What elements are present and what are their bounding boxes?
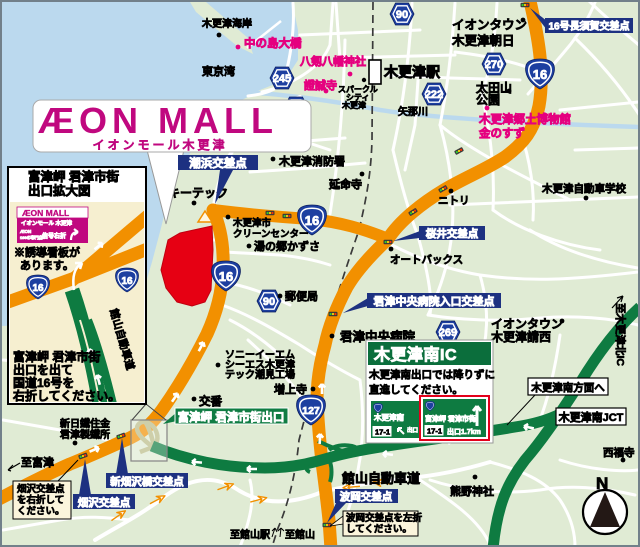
svg-text:増上寺: 増上寺 bbox=[274, 382, 307, 396]
svg-text:269: 269 bbox=[439, 327, 457, 339]
svg-text:クリーンセンター: クリーンセンター bbox=[233, 228, 309, 240]
svg-text:熊野神社: 熊野神社 bbox=[450, 484, 494, 498]
svg-text:テック潮見工場: テック潮見工場 bbox=[225, 368, 295, 381]
svg-text:国道16号を: 国道16号を bbox=[13, 375, 74, 390]
svg-text:富津岬 君津市街: 富津岬 君津市街 bbox=[13, 349, 100, 364]
svg-text:西福寺: 西福寺 bbox=[603, 446, 635, 459]
svg-text:波岡交差点: 波岡交差点 bbox=[340, 490, 393, 503]
svg-text:オートバックス: オートバックス bbox=[390, 254, 463, 266]
svg-text:90: 90 bbox=[263, 296, 275, 308]
svg-text:90: 90 bbox=[396, 9, 408, 21]
svg-text:君津中央病院入口交差点: 君津中央病院入口交差点 bbox=[374, 294, 495, 308]
svg-text:公園: 公園 bbox=[476, 93, 500, 107]
svg-text:湯の郷かずさ: 湯の郷かずさ bbox=[254, 239, 320, 253]
svg-text:16: 16 bbox=[121, 276, 133, 287]
svg-text:木更津南: 木更津南 bbox=[373, 412, 404, 422]
svg-text:矢那川: 矢那川 bbox=[398, 105, 428, 118]
svg-text:至木更津北IC: 至木更津北IC bbox=[614, 303, 627, 366]
svg-text:木更津南出口では降りずに: 木更津南出口では降りずに bbox=[368, 368, 495, 381]
svg-text:100の専門店: 100の専門店 bbox=[20, 234, 43, 240]
svg-text:木更津海岸: 木更津海岸 bbox=[201, 17, 252, 30]
svg-text:富津岬 君津市街出口: 富津岬 君津市街出口 bbox=[178, 410, 285, 424]
svg-text:222: 222 bbox=[425, 89, 443, 101]
svg-text:ÆON MALL: ÆON MALL bbox=[22, 208, 69, 218]
svg-text:木更津南IC: 木更津南IC bbox=[373, 345, 457, 364]
svg-text:イオンタウン: イオンタウン bbox=[491, 317, 563, 331]
svg-text:君津製鐵所: 君津製鐵所 bbox=[60, 428, 110, 441]
svg-text:※誘導看板が: ※誘導看板が bbox=[14, 245, 80, 259]
svg-text:ÆON MALL: ÆON MALL bbox=[38, 100, 278, 141]
svg-text:木更津南JCT: 木更津南JCT bbox=[558, 410, 624, 424]
svg-text:17-1: 17-1 bbox=[427, 427, 442, 436]
svg-text:出口を出て: 出口を出て bbox=[13, 362, 73, 377]
svg-text:ニトリ: ニトリ bbox=[438, 195, 470, 207]
svg-text:127: 127 bbox=[302, 405, 320, 417]
svg-text:富津岬 君津市街: 富津岬 君津市街 bbox=[28, 169, 119, 184]
svg-text:16号長須賀交差点: 16号長須賀交差点 bbox=[548, 20, 629, 33]
svg-text:至館山: 至館山 bbox=[285, 528, 315, 541]
svg-text:出口1.7km: 出口1.7km bbox=[447, 427, 481, 436]
svg-text:信号右折: 信号右折 bbox=[42, 232, 66, 240]
svg-text:245: 245 bbox=[273, 73, 291, 85]
svg-text:出口: 出口 bbox=[407, 426, 418, 434]
svg-text:してください。: してください。 bbox=[346, 524, 412, 535]
svg-text:イオンモール木更津: イオンモール木更津 bbox=[92, 137, 227, 152]
svg-text:畑沢交差点: 畑沢交差点 bbox=[78, 496, 131, 509]
svg-text:あります。: あります。 bbox=[20, 259, 74, 272]
svg-text:ください。: ください。 bbox=[17, 506, 65, 517]
svg-text:新日鐵住金: 新日鐵住金 bbox=[60, 417, 111, 430]
svg-text:木更津朝日: 木更津朝日 bbox=[451, 33, 515, 48]
svg-text:17-1: 17-1 bbox=[375, 428, 390, 437]
svg-text:富津岬 君津市街: 富津岬 君津市街 bbox=[425, 414, 476, 423]
svg-text:出口拡大図: 出口拡大図 bbox=[28, 183, 91, 198]
svg-text:中の島大橋: 中の島大橋 bbox=[244, 36, 302, 50]
svg-text:延命寺: 延命寺 bbox=[328, 177, 362, 191]
svg-text:木更津請西: 木更津請西 bbox=[490, 329, 551, 344]
svg-text:木更津南方面へ: 木更津南方面へ bbox=[530, 381, 605, 394]
svg-text:木更津駅: 木更津駅 bbox=[383, 64, 441, 80]
svg-text:ÆON: ÆON bbox=[20, 229, 31, 234]
svg-text:木更津郷土博物館: 木更津郷土博物館 bbox=[478, 112, 571, 126]
svg-text:證誠寺: 證誠寺 bbox=[304, 78, 337, 92]
svg-text:木更津: 木更津 bbox=[341, 100, 366, 110]
svg-text:至富津: 至富津 bbox=[21, 455, 54, 469]
svg-text:イオンタウン: イオンタウン bbox=[452, 17, 527, 32]
svg-text:N: N bbox=[596, 474, 608, 493]
svg-text:郵便局: 郵便局 bbox=[285, 289, 318, 303]
svg-text:新畑沢橋交差点: 新畑沢橋交差点 bbox=[110, 475, 184, 488]
svg-text:16: 16 bbox=[305, 213, 319, 228]
svg-text:波岡交差点を左折: 波岡交差点を左折 bbox=[346, 512, 423, 524]
svg-text:直進してください。: 直進してください。 bbox=[369, 383, 463, 396]
svg-text:を右折して: を右折して bbox=[17, 494, 64, 506]
svg-text:木更津消防署: 木更津消防署 bbox=[278, 154, 345, 168]
svg-text:畑沢交差点: 畑沢交差点 bbox=[17, 483, 65, 495]
svg-text:木更津自動車学校: 木更津自動車学校 bbox=[541, 182, 626, 195]
svg-text:木更津市: 木更津市 bbox=[232, 217, 272, 229]
svg-text:16: 16 bbox=[533, 67, 547, 82]
svg-text:東京湾: 東京湾 bbox=[202, 64, 235, 78]
svg-text:16: 16 bbox=[32, 283, 44, 294]
svg-text:潮浜交差点: 潮浜交差点 bbox=[189, 156, 247, 170]
svg-text:右折してください。: 右折してください。 bbox=[12, 388, 120, 403]
svg-text:館山自動車道: 館山自動車道 bbox=[342, 471, 420, 486]
svg-text:イオンモール 木更津: イオンモール 木更津 bbox=[21, 219, 73, 227]
svg-text:270: 270 bbox=[485, 59, 503, 71]
svg-text:金のすず: 金のすず bbox=[478, 126, 525, 140]
svg-text:交番: 交番 bbox=[199, 394, 222, 408]
svg-text:至館山駅: 至館山駅 bbox=[230, 528, 271, 541]
svg-text:16: 16 bbox=[219, 269, 233, 284]
svg-text:八剱八幡神社: 八剱八幡神社 bbox=[299, 54, 366, 68]
svg-text:桜井交差点: 桜井交差点 bbox=[426, 227, 479, 240]
